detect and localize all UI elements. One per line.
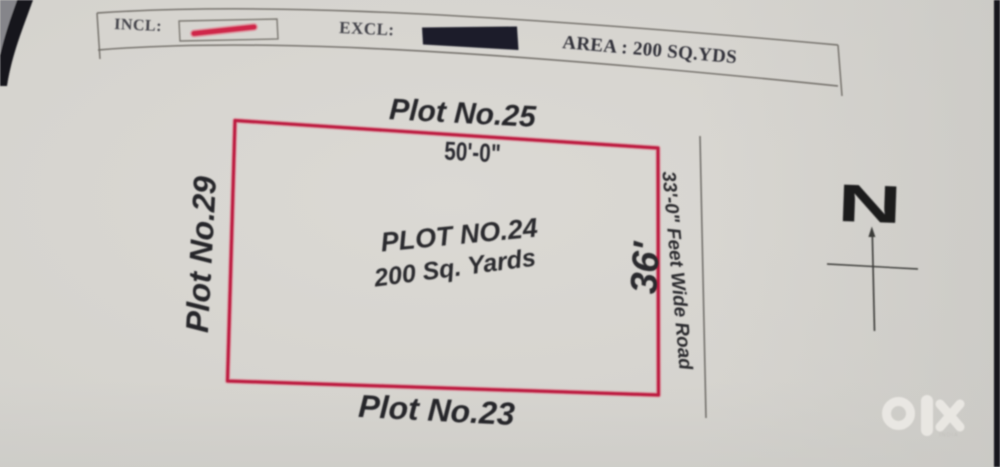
svg-text:EXCL:: EXCL:	[339, 18, 395, 39]
svg-text:N: N	[836, 173, 902, 235]
svg-text:50'-0": 50'-0"	[444, 136, 502, 168]
svg-text:36': 36'	[623, 239, 669, 295]
svg-text:INCL:: INCL:	[114, 16, 163, 35]
svg-text:INDIA: INDIA	[939, 433, 959, 439]
